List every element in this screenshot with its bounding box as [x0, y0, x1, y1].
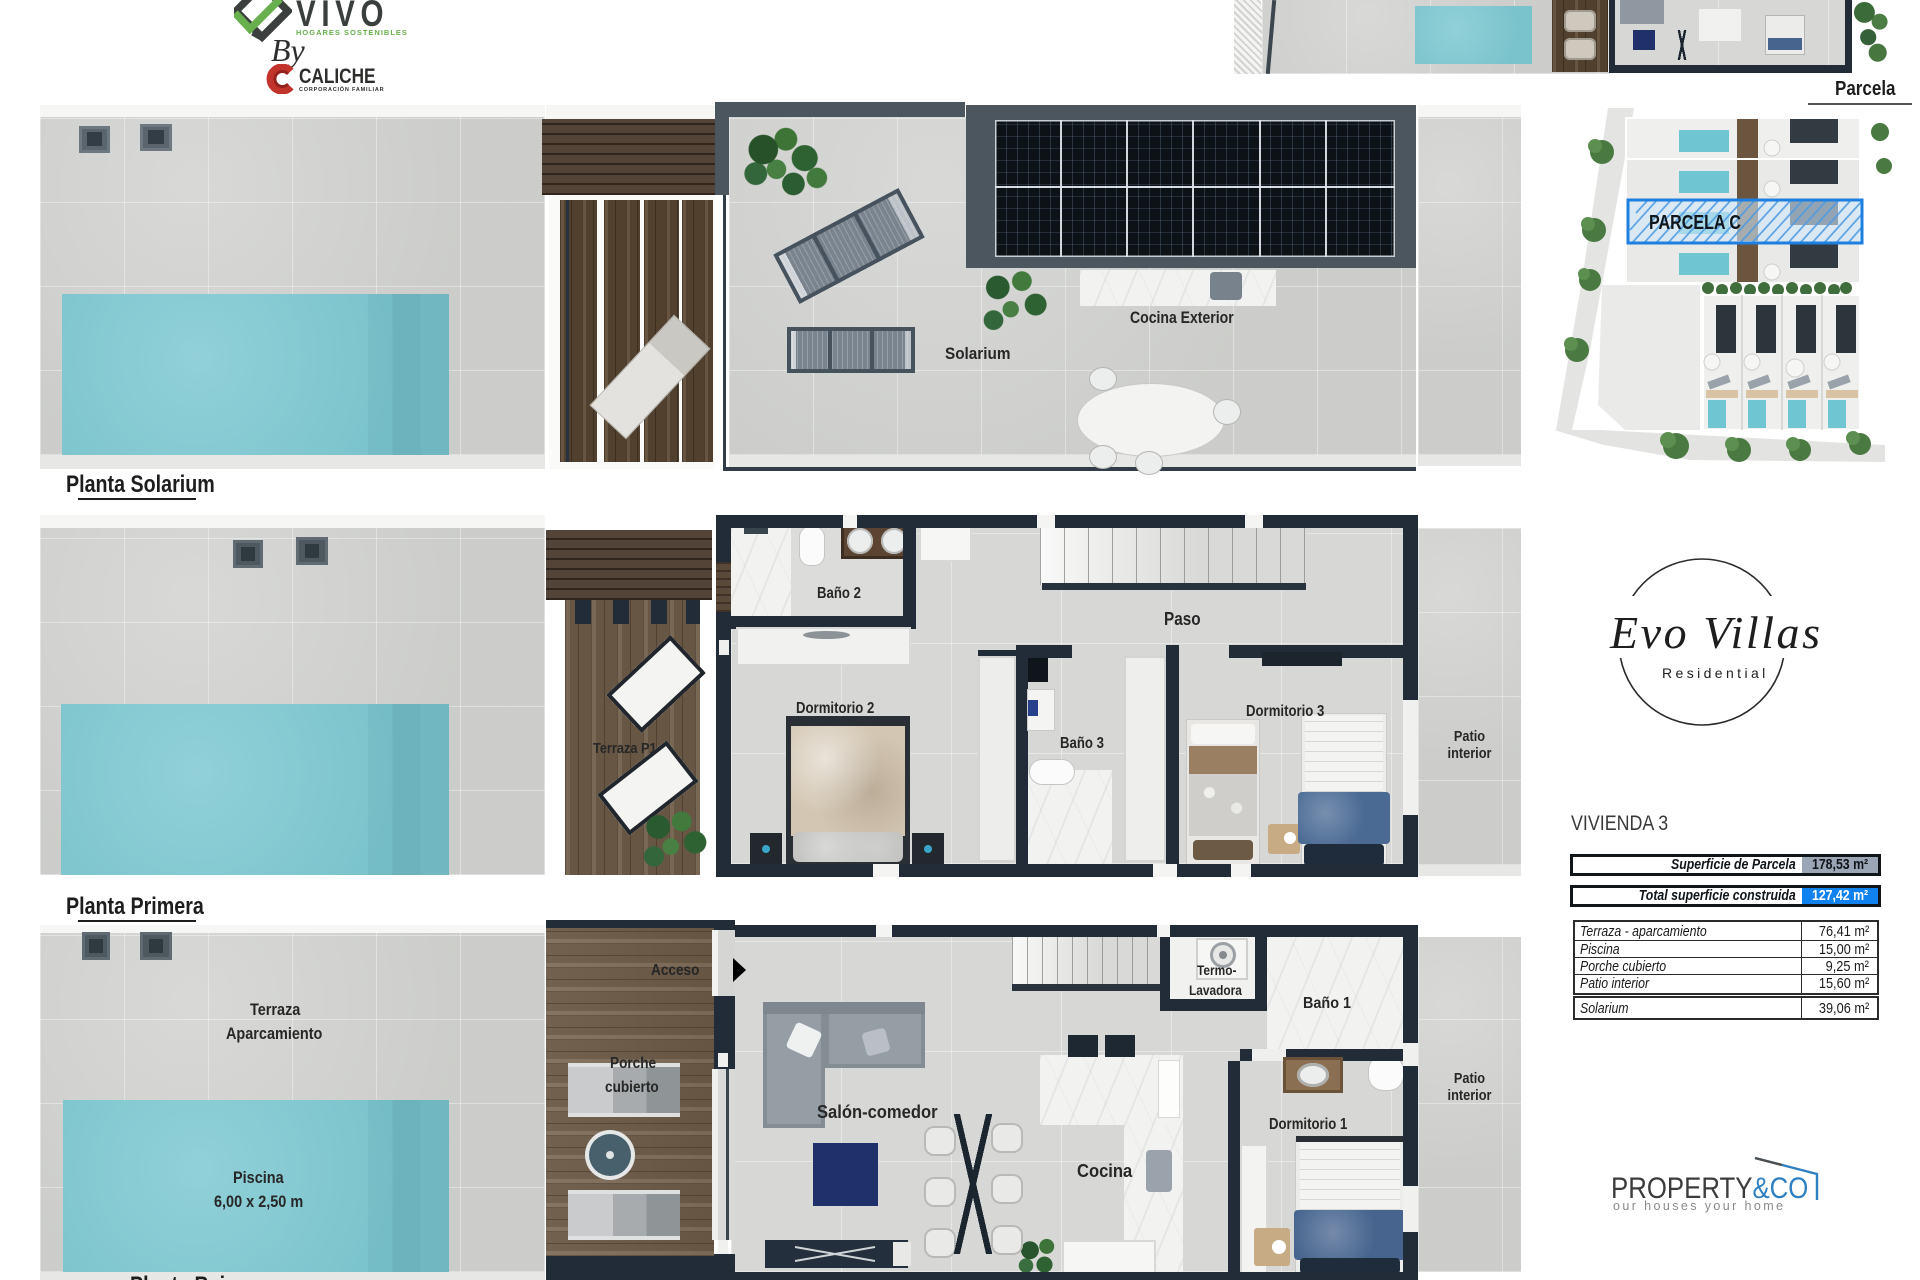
svg-text:Evo Villas: Evo Villas [1609, 607, 1820, 658]
svg-text:Residential: Residential [1662, 665, 1769, 681]
svg-text:PARCELA C: PARCELA C [1649, 212, 1741, 234]
